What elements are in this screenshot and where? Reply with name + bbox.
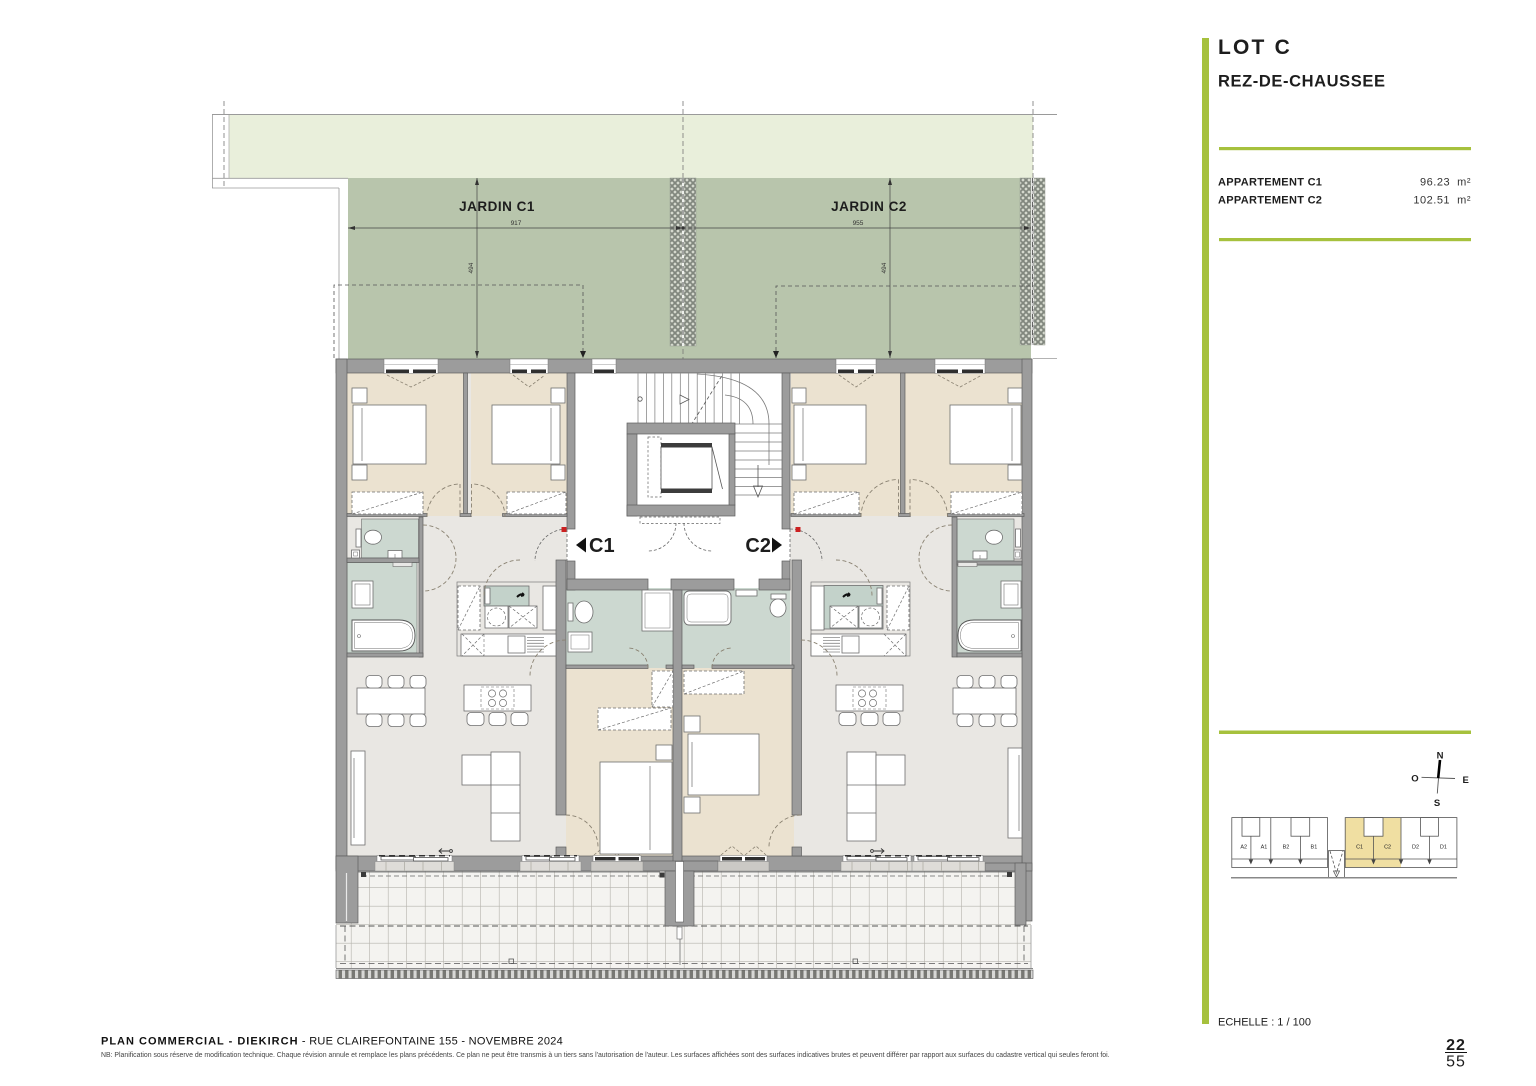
- svg-text:C1: C1: [1356, 845, 1363, 851]
- svg-text:C2: C2: [745, 535, 771, 557]
- svg-text:REZ-DE-CHAUSSEE: REZ-DE-CHAUSSEE: [1218, 73, 1386, 91]
- svg-text:O: O: [1411, 774, 1418, 785]
- svg-text:C1: C1: [589, 535, 615, 557]
- svg-text:55: 55: [1446, 1054, 1466, 1071]
- svg-text:APPARTEMENT C1: APPARTEMENT C1: [1218, 177, 1322, 189]
- svg-text:96.23 m²: 96.23 m²: [1420, 177, 1471, 189]
- svg-text:C2: C2: [1384, 845, 1391, 851]
- svg-text:APPARTEMENT C2: APPARTEMENT C2: [1218, 195, 1322, 207]
- svg-text:494: 494: [881, 262, 888, 273]
- svg-text:NB: Planification sous réserve: NB: Planification sous réserve de modifi…: [101, 1052, 1110, 1059]
- svg-text:A1: A1: [1261, 845, 1268, 851]
- svg-text:494: 494: [468, 262, 475, 273]
- svg-text:N: N: [1437, 751, 1444, 762]
- svg-text:E: E: [1463, 775, 1469, 786]
- svg-text:D2: D2: [1412, 845, 1419, 851]
- svg-text:JARDIN C1: JARDIN C1: [459, 199, 535, 214]
- svg-text:D1: D1: [1440, 845, 1447, 851]
- svg-text:LOT C: LOT C: [1218, 36, 1292, 59]
- svg-text:PLAN COMMERCIAL - DIEKIRCH - R: PLAN COMMERCIAL - DIEKIRCH - RUE CLAIREF…: [101, 1036, 563, 1048]
- svg-text:B2: B2: [1283, 845, 1290, 851]
- svg-text:S: S: [1434, 798, 1440, 809]
- svg-text:JARDIN C2: JARDIN C2: [831, 199, 907, 214]
- svg-text:B1: B1: [1311, 845, 1318, 851]
- svg-text:955: 955: [853, 220, 864, 227]
- svg-text:A2: A2: [1240, 845, 1247, 851]
- svg-text:917: 917: [511, 220, 522, 227]
- svg-text:ECHELLE : 1 / 100: ECHELLE : 1 / 100: [1218, 1017, 1311, 1029]
- svg-text:102.51 m²: 102.51 m²: [1413, 195, 1471, 207]
- svg-text:22: 22: [1446, 1037, 1466, 1054]
